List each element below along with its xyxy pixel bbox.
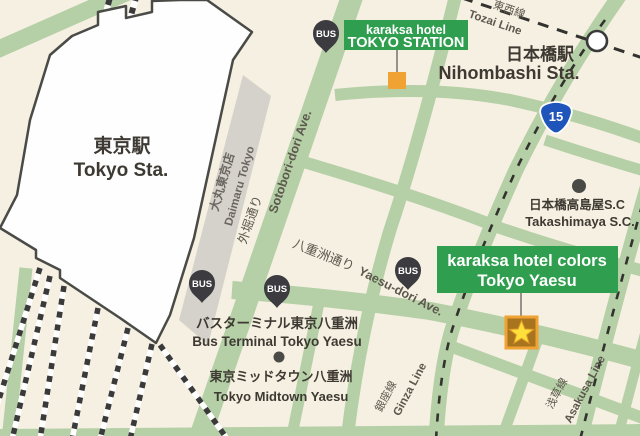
nihombashi-label-ja: 日本橋駅 <box>506 44 575 64</box>
midtown-label-ja: 東京ミッドタウン八重洲 <box>209 369 352 384</box>
street-bottom-band <box>0 430 640 435</box>
nihombashi-station-marker <box>587 31 607 51</box>
badge-line2: TOKYO STATION <box>348 35 465 51</box>
tokyo-station-label-ja: 東京駅 <box>93 134 151 157</box>
tokyo-station-label-en: Tokyo Sta. <box>74 160 169 181</box>
bus-pin-label: BUS <box>398 266 418 277</box>
takashimaya-label-ja: 日本橋高島屋S.C <box>529 197 625 212</box>
map-canvas: 15 BUS BUS BUS BUS karaksa <box>0 0 640 436</box>
hotel-badge-tokyo-yaesu: karaksa hotel colors Tokyo Yaesu <box>437 246 618 293</box>
bus-pin-label: BUS <box>316 29 336 40</box>
orange-square-marker <box>388 72 406 89</box>
badge-line2: Tokyo Yaesu <box>477 272 576 290</box>
bus-terminal-label-en: Bus Terminal Tokyo Yaesu <box>192 334 362 349</box>
area-map: 15 BUS BUS BUS BUS karaksa <box>0 0 640 436</box>
midtown-label-en: Tokyo Midtown Yaesu <box>214 389 349 404</box>
badge-line1: karaksa hotel colors <box>447 252 607 270</box>
hotel-badge-tokyo-station: karaksa hotel TOKYO STATION <box>344 20 468 51</box>
route-number: 15 <box>549 109 563 124</box>
midtown-dot <box>274 352 285 363</box>
bus-pin-label: BUS <box>267 284 287 295</box>
bus-terminal-label-ja: バスターミナル東京八重洲 <box>196 315 358 331</box>
takashimaya-label-en: Takashimaya S.C. <box>525 214 635 229</box>
takashimaya-dot <box>572 179 586 193</box>
nihombashi-label-en: Nihombashi Sta. <box>438 63 579 83</box>
bus-pin-label: BUS <box>192 279 212 290</box>
